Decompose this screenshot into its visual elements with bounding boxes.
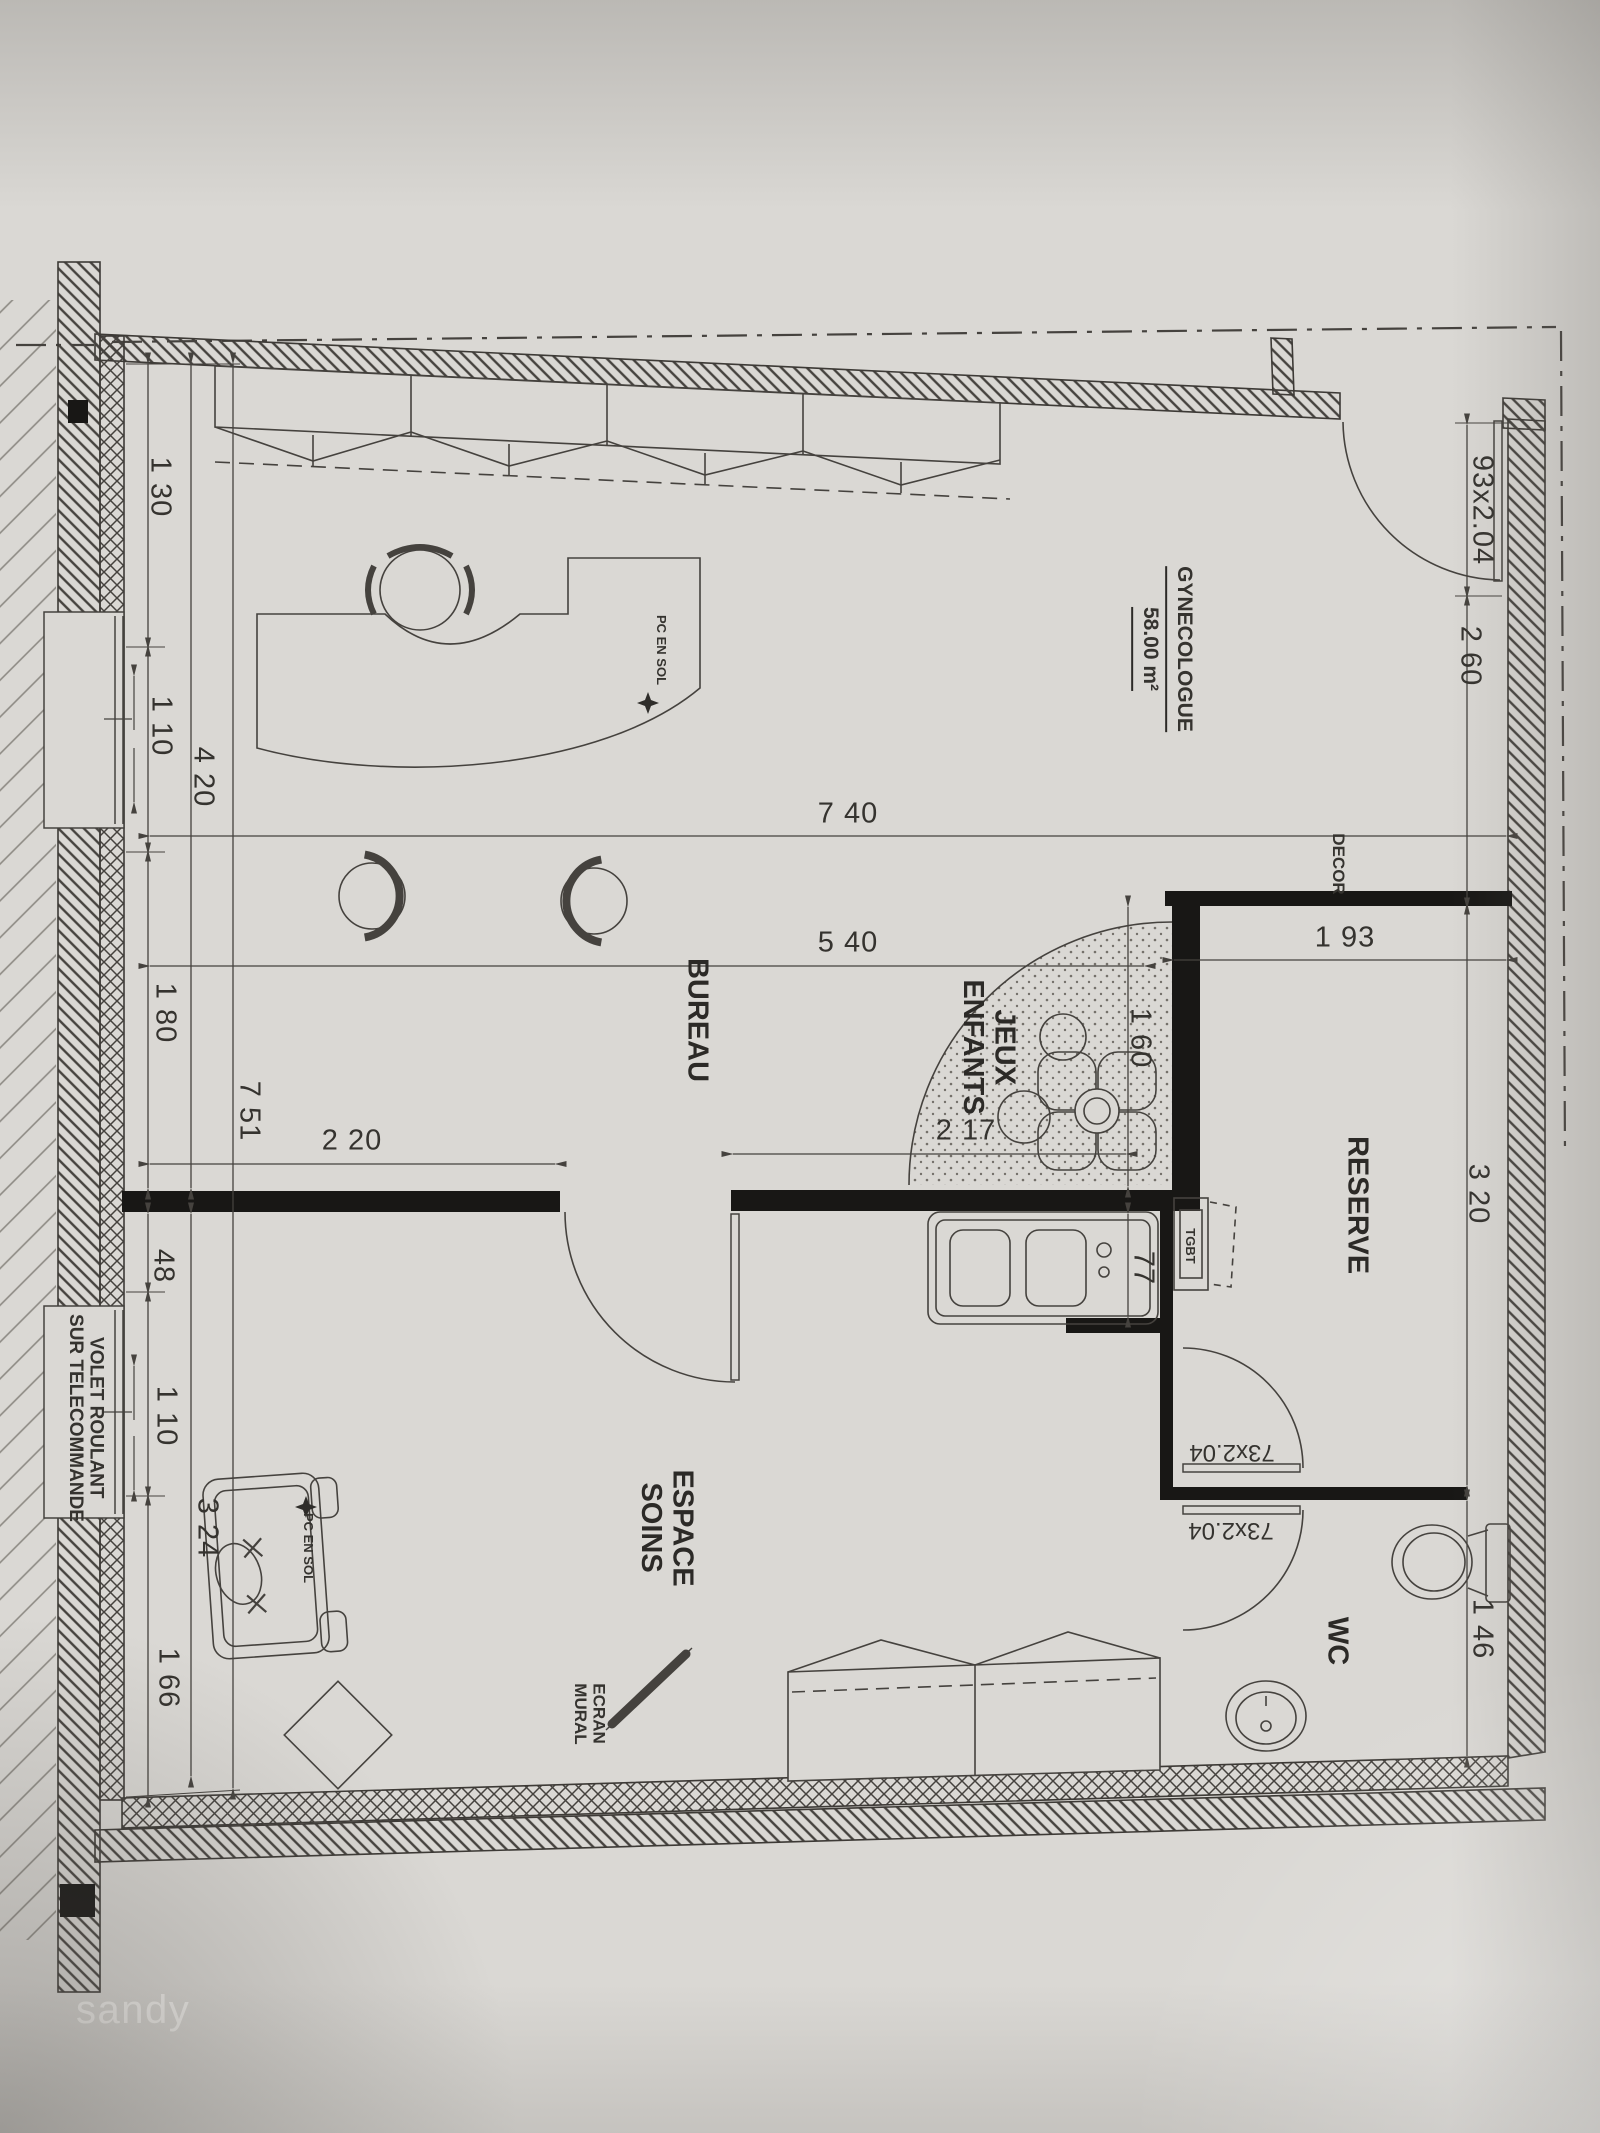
label-ecran-mural: ECRAN MURAL <box>571 1683 608 1744</box>
dim-label-320: 3 20 <box>1462 1164 1493 1224</box>
label-decor: DECOR <box>1329 833 1347 894</box>
label-volet-roulant: VOLET ROULANT SUR TELECOMMANDE <box>64 1314 105 1522</box>
wall-marker-bottom <box>60 1884 95 1917</box>
room-label-espace-soins: ESPACE SOINS <box>635 1469 698 1586</box>
wall-kitchen-vertical <box>1160 1211 1173 1499</box>
visitor-chairs <box>339 855 627 943</box>
label-tgbt: TGBT <box>1183 1228 1197 1263</box>
dim-label-220: 2 20 <box>322 1125 382 1156</box>
plan-sheet: 1 30 1 10 4 20 1 80 7 51 48 1 10 3 24 1 … <box>0 0 1600 2133</box>
wall-bureau-soins-left <box>122 1191 560 1212</box>
dim-label-166: 1 66 <box>152 1648 183 1708</box>
window-upper <box>44 612 134 828</box>
bottom-cabinets <box>788 1632 1160 1781</box>
dim-label-260: 2 60 <box>1454 626 1485 686</box>
wall-bureau-soins-right <box>731 1190 1200 1211</box>
wall-kitchen-bottom <box>1066 1318 1162 1333</box>
dim-label-110-top: 1 10 <box>145 696 176 756</box>
toilet <box>1392 1524 1510 1602</box>
label-pc-en-sol-bureau: PC EN SOL <box>654 615 668 685</box>
exam-chair <box>202 1471 348 1660</box>
room-label-bureau: BUREAU <box>681 958 712 1082</box>
wall-marker-top <box>68 400 88 423</box>
room-label-wc: WC <box>1321 1617 1352 1665</box>
dim-label-48: 48 <box>147 1249 178 1283</box>
photo-watermark: sandy <box>76 1988 190 2033</box>
executive-chair <box>368 547 472 630</box>
dim-label-324: 3 24 <box>191 1498 222 1558</box>
label-pc-en-sol-soins: PC EN SOL <box>301 1513 315 1583</box>
stool-square <box>284 1681 391 1788</box>
floor-socket-icon <box>637 692 659 714</box>
bureau-door-swing <box>565 1212 735 1382</box>
dim-label-740: 7 40 <box>818 798 878 829</box>
exterior-hatch <box>0 300 56 1940</box>
dimension-lines <box>126 364 1512 1797</box>
wall-screen <box>606 1648 692 1730</box>
wc-door-leaf <box>1183 1506 1300 1514</box>
wall-wc <box>1160 1487 1467 1500</box>
bureau-door-leaf <box>731 1214 739 1380</box>
door-size-wc-lower: 73x2.04 <box>1188 1517 1273 1543</box>
desk <box>257 558 700 767</box>
dim-label-77: 77 <box>1127 1251 1158 1285</box>
wc-basin <box>1226 1681 1306 1751</box>
door-size-entry: 93x2.04 <box>1466 455 1497 565</box>
door-size-wc-upper: 73x2.04 <box>1189 1439 1274 1465</box>
photographed-floor-plan: { "document": { "type": "floor-plan-phot… <box>0 0 1600 2133</box>
room-label-reserve: RESERVE <box>1341 1136 1372 1274</box>
dim-label-130: 1 30 <box>144 457 175 517</box>
room-area-gynecologue: 58.00 m² <box>1131 607 1161 691</box>
room-label-jeux-enfants: JEUX ENFANTS <box>957 979 1020 1114</box>
furniture <box>202 366 1510 1789</box>
dim-label-193: 1 93 <box>1315 922 1375 953</box>
dim-label-217: 2 17 <box>936 1115 996 1146</box>
sink-unit <box>928 1212 1158 1324</box>
floor-socket-stars <box>295 692 659 1518</box>
dim-label-160: 1 60 <box>1124 1008 1155 1068</box>
wall-jeux-vertical <box>1172 899 1200 1210</box>
room-label-gynecologue: GYNECOLOGUE <box>1165 566 1195 732</box>
dim-label-146: 1 46 <box>1466 1599 1497 1659</box>
dim-label-420: 4 20 <box>187 747 218 807</box>
dim-label-110-bottom: 1 10 <box>150 1386 181 1446</box>
dim-label-540: 5 40 <box>818 927 878 958</box>
partition-walls <box>122 891 1512 1500</box>
dim-label-180: 1 80 <box>149 983 180 1043</box>
dim-label-751: 7 51 <box>233 1081 264 1141</box>
plan-drawing <box>0 0 1600 2133</box>
